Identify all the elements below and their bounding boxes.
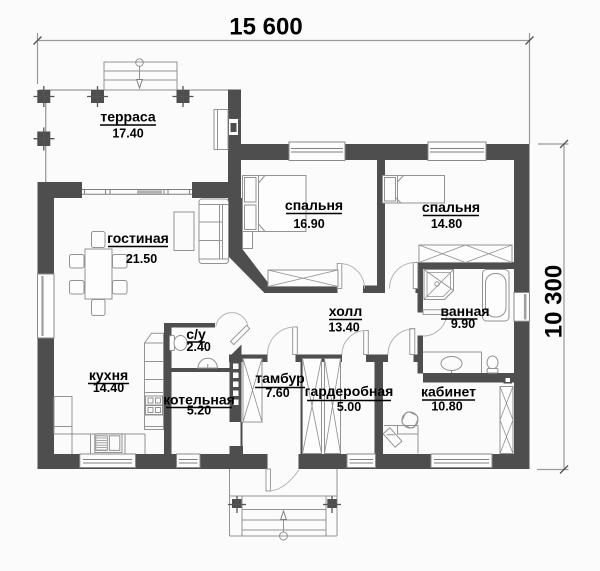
svg-text:14.80: 14.80 bbox=[431, 217, 462, 231]
svg-text:15 600: 15 600 bbox=[229, 14, 302, 41]
svg-text:гостиная: гостиная bbox=[107, 230, 169, 246]
svg-text:7.60: 7.60 bbox=[265, 386, 289, 400]
svg-text:кабинет: кабинет bbox=[421, 384, 476, 400]
svg-text:10 300: 10 300 bbox=[541, 265, 568, 338]
svg-text:тамбур: тамбур bbox=[255, 370, 304, 386]
svg-text:гардеробная: гардеробная bbox=[305, 383, 394, 399]
svg-text:21.50: 21.50 bbox=[126, 252, 157, 266]
svg-text:16.90: 16.90 bbox=[293, 217, 324, 231]
svg-text:10.80: 10.80 bbox=[431, 400, 462, 414]
svg-text:9.90: 9.90 bbox=[451, 317, 475, 331]
svg-text:5.20: 5.20 bbox=[187, 404, 211, 418]
svg-text:спальня: спальня bbox=[422, 199, 480, 215]
svg-text:2.40: 2.40 bbox=[187, 340, 211, 354]
svg-text:5.00: 5.00 bbox=[337, 400, 361, 414]
svg-text:терраса: терраса bbox=[100, 109, 155, 125]
svg-text:14.40: 14.40 bbox=[93, 381, 124, 395]
svg-text:13.40: 13.40 bbox=[328, 321, 359, 335]
svg-text:17.40: 17.40 bbox=[112, 127, 143, 141]
svg-text:спальня: спальня bbox=[285, 197, 343, 213]
svg-text:холл: холл bbox=[329, 303, 362, 319]
